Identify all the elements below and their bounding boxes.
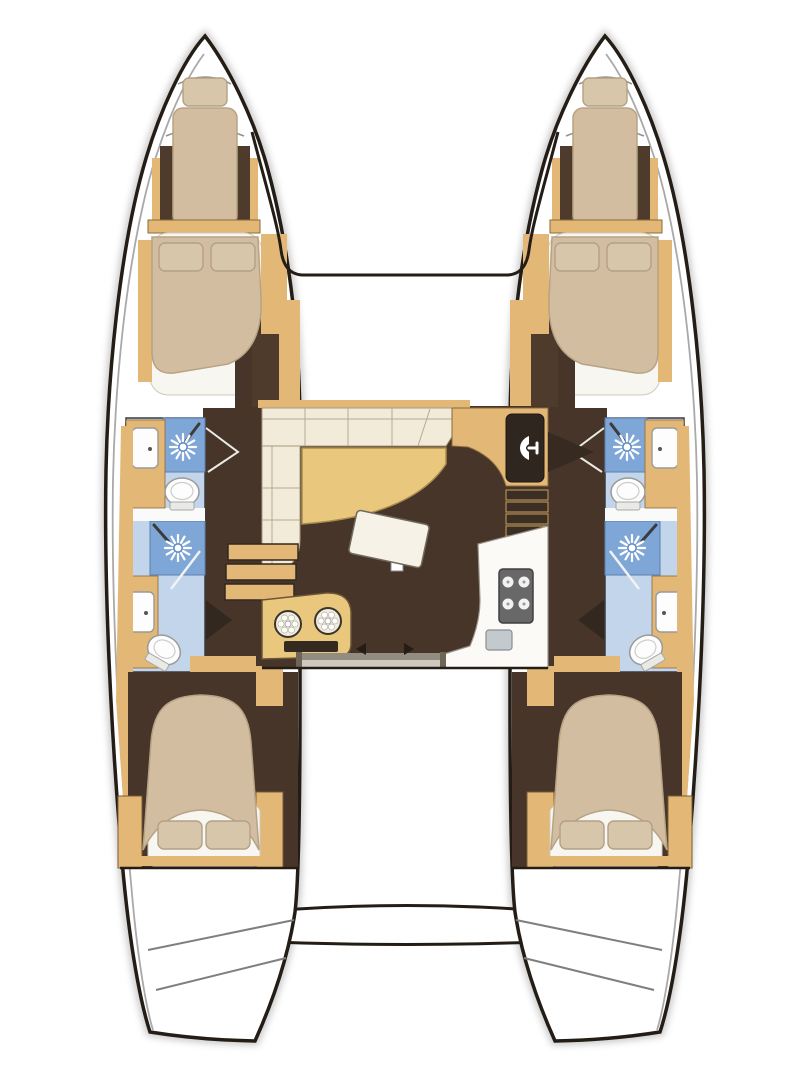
instrument-console — [262, 593, 351, 659]
catamaran-floor-plan-page — [0, 0, 810, 1080]
bathrooms — [122, 418, 205, 674]
galley-sink — [486, 630, 512, 650]
pillow — [158, 821, 202, 849]
dial-icon — [275, 611, 301, 637]
sink-icon — [132, 428, 158, 468]
pillow — [183, 78, 227, 106]
dial-icon — [315, 608, 341, 634]
sofa-back-trim — [258, 400, 470, 408]
stairs-port — [225, 544, 298, 600]
toilet-icon — [165, 478, 199, 510]
forward-bulkhead — [148, 220, 260, 233]
pillow — [206, 821, 250, 849]
catamaran-floor-plan — [0, 0, 810, 1080]
stove-icon — [499, 569, 533, 623]
pillow — [211, 243, 255, 271]
pillow — [159, 243, 203, 271]
saloon — [225, 400, 594, 668]
forward-cabin — [138, 233, 300, 408]
foredeck-outline — [252, 132, 558, 275]
aft-cabin — [118, 656, 298, 868]
